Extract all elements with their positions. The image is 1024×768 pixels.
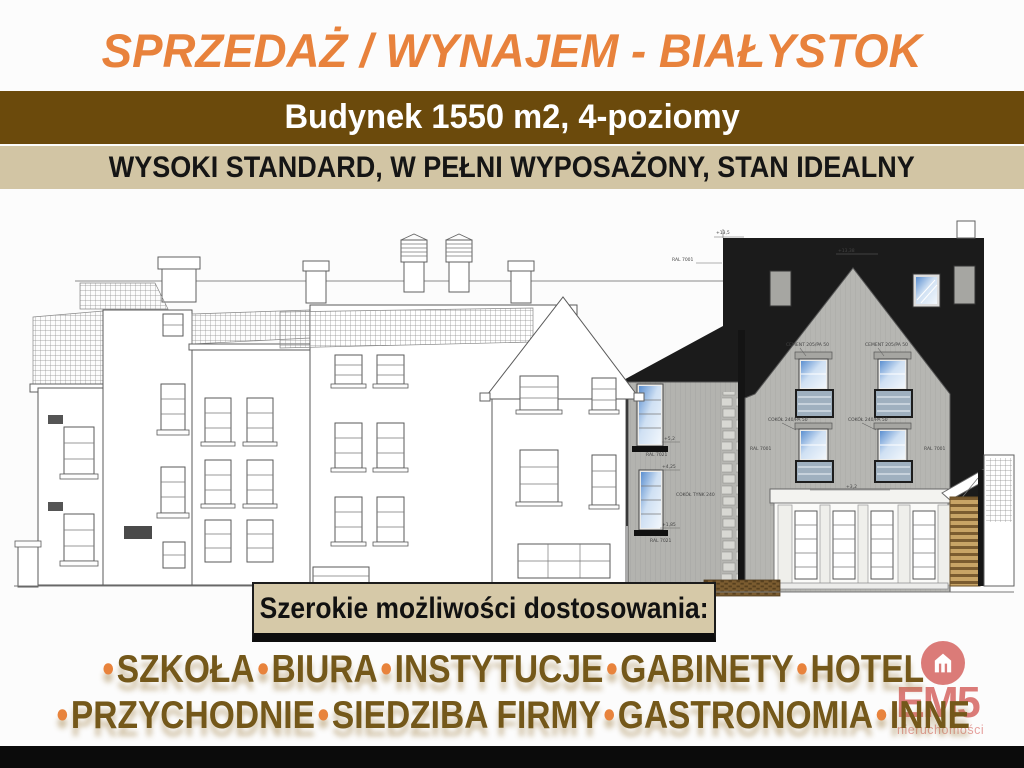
bullet-icon: • — [102, 648, 114, 692]
dimension-annotation: COKÓŁ 240/PA 50 — [848, 416, 888, 423]
advert-poster: SPRZEDAŻ / WYNAJEM - BIAŁYSTOK Budynek 1… — [0, 0, 1024, 768]
use-item: SZKOŁA — [117, 648, 255, 692]
dimension-annotation: +13,5 — [716, 230, 730, 236]
bullet-icon: • — [603, 694, 615, 738]
standard-band: WYSOKI STANDARD, W PEŁNI WYPOSAŻONY, STA… — [0, 146, 1024, 189]
dimension-annotation: CEMENT 205/PA 50 — [865, 342, 908, 348]
mid-left-building — [103, 310, 192, 585]
dimension-annotation: RAL 7021 — [646, 452, 668, 458]
dimension-annotation: RAL 7021 — [650, 538, 672, 544]
use-item: INNE — [890, 694, 970, 738]
use-item: GASTRONOMIA — [618, 694, 873, 738]
dimension-annotation: RAL 7001 — [924, 446, 946, 452]
use-item: BIURA — [272, 648, 378, 692]
use-item: PRZYCHODNIE — [71, 694, 315, 738]
bullet-icon: • — [380, 648, 392, 692]
adaptability-banner: Szerokie możliwości dostosowania: — [252, 582, 716, 642]
uses-line-1: • SZKOŁA • BIURA • INSTYTUCJE • GABINETY… — [72, 648, 953, 692]
building-info-text: Budynek 1550 m2, 4-poziomy — [284, 98, 739, 137]
use-item: SIEDZIBA FIRMY — [332, 694, 601, 738]
dimension-annotation: RAL 7001 — [750, 446, 772, 452]
page-title: SPRZEDAŻ / WYNAJEM - BIAŁYSTOK — [0, 12, 1024, 88]
dimension-annotation: CEMENT 205/PA 50 — [786, 342, 829, 348]
mid-building — [189, 310, 313, 585]
bullet-icon: • — [57, 694, 69, 738]
adaptability-banner-text: Szerokie możliwości dostosowania: — [260, 592, 709, 626]
use-item: INSTYTUCJE — [395, 648, 604, 692]
use-item: HOTEL — [810, 648, 924, 692]
uses-line-2: • PRZYCHODNIE • SIEDZIBA FIRMY • GASTRON… — [72, 694, 953, 738]
colored-building — [618, 221, 1014, 596]
dimension-annotation: +5,2 — [664, 436, 675, 442]
bullet-icon: • — [257, 648, 269, 692]
dimension-annotation: +3,2 — [846, 484, 857, 490]
bottom-bar — [0, 746, 1024, 768]
standard-text: WYSOKI STANDARD, W PEŁNI WYPOSAŻONY, STA… — [109, 151, 915, 185]
bullet-icon: • — [606, 648, 618, 692]
dimension-annotation: +1,85 — [662, 522, 676, 528]
left-building — [15, 388, 103, 587]
chimney-row — [158, 234, 534, 303]
dimension-annotation: +4,25 — [662, 464, 676, 470]
use-item: GABINETY — [620, 648, 793, 692]
bullet-icon: • — [876, 694, 888, 738]
building-info-band: Budynek 1550 m2, 4-poziomy — [0, 91, 1024, 144]
page-title-text: SPRZEDAŻ / WYNAJEM - BIAŁYSTOK — [102, 23, 922, 78]
dimension-annotation: +13,38 — [838, 248, 855, 254]
bullet-icon: • — [318, 694, 330, 738]
architectural-elevation: +13,5 +13,38 RAL 7001 RAL 7001 RAL 7001 … — [0, 190, 1024, 630]
dimension-annotation: RAL 7001 — [672, 257, 694, 263]
dimension-annotation: COKÓŁ TYNK 240 — [676, 491, 715, 498]
bullet-icon: • — [796, 648, 808, 692]
dimension-annotation: COKÓŁ 240/PA 50 — [768, 416, 808, 423]
